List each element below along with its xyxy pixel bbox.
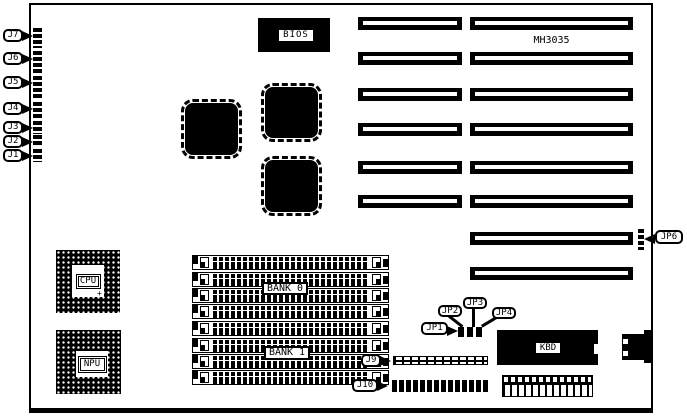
j10-pin-header — [392, 380, 488, 392]
connector-pads-j1 — [33, 149, 42, 162]
connector-pads-j6 — [33, 51, 42, 75]
pin1-marker: + — [97, 290, 102, 298]
isa-slot-1-short — [358, 17, 462, 30]
npu-socket: NPU — [56, 330, 121, 394]
callout-j10: J10 — [352, 379, 378, 392]
callout-j9: J9 — [361, 354, 381, 367]
isa-slot-3-short — [358, 88, 462, 101]
callout-jp4-label: JP4 — [496, 309, 512, 318]
jumper-block-jp1-jp4 — [458, 327, 485, 337]
isa-slot-6-long — [470, 195, 633, 208]
kbd-label: KBD — [535, 342, 561, 354]
callout-arrow-right-icon — [380, 356, 391, 366]
simm-slot-1 — [192, 255, 389, 270]
callout-j7-label: J7 — [8, 31, 19, 40]
connector-pads-j7 — [33, 28, 42, 48]
connector-pads-j5 — [33, 76, 42, 100]
power-connector-pins — [502, 375, 593, 384]
callout-arrow-right-icon — [377, 381, 388, 391]
callout-jp1: JP1 — [421, 322, 448, 335]
callout-jp2: JP2 — [438, 305, 462, 317]
callout-j6: J6 — [3, 52, 23, 65]
callout-j6-label: J6 — [8, 54, 19, 63]
isa-slot-5-short — [358, 161, 462, 174]
isa-slot-5-long — [470, 161, 633, 174]
callout-j5: J5 — [3, 76, 23, 89]
callout-arrow-right-icon — [22, 78, 33, 88]
callout-arrow-right-icon — [22, 123, 33, 133]
callout-arrow-right-icon — [22, 151, 33, 161]
callout-j3-label: J3 — [8, 123, 19, 132]
connector-pads-j2 — [33, 135, 42, 147]
keyboard-din-connector — [622, 334, 644, 360]
callout-j7: J7 — [3, 29, 23, 42]
simm-slot-4 — [192, 304, 389, 319]
callout-j3: J3 — [3, 121, 23, 134]
callout-arrow-right-icon — [22, 31, 33, 41]
callout-arrow-right-icon — [22, 104, 33, 114]
callout-j10-label: J10 — [357, 381, 373, 390]
callout-j1: J1 — [3, 149, 23, 162]
power-connector-terminals — [502, 384, 593, 397]
connector-pads-j4 — [33, 102, 42, 118]
connector-pads-j3 — [33, 121, 42, 134]
cpu-socket: CPU + — [56, 250, 120, 313]
isa-slot-6-short — [358, 195, 462, 208]
callout-jp4: JP4 — [492, 307, 516, 319]
npu-socket-well: NPU — [76, 351, 108, 377]
callout-jp2-label: JP2 — [442, 307, 458, 316]
callout-arrow-right-icon — [447, 326, 458, 336]
isa-slot-3-long — [470, 88, 633, 101]
callout-jp6-label: JP6 — [661, 233, 677, 242]
isa-slot-1-long — [470, 17, 633, 30]
isa-slot-2-long — [470, 52, 633, 65]
bios-chip: BIOS — [258, 18, 330, 52]
bios-label: BIOS — [278, 29, 314, 42]
cpu-label: CPU — [78, 276, 99, 287]
model-number-label: MH3035 — [470, 35, 633, 46]
chip-notch — [594, 344, 598, 354]
isa-slot-7 — [470, 232, 633, 245]
callout-j1-label: J1 — [8, 151, 19, 160]
callout-arrow-left-icon — [644, 234, 655, 244]
simm-slot-5 — [192, 321, 389, 336]
callout-j4: J4 — [3, 102, 23, 115]
callout-jp1-label: JP1 — [426, 324, 442, 333]
keyboard-din-connector-body — [644, 330, 651, 363]
callout-j9-label: J9 — [366, 356, 377, 365]
kbd-chip: KBD — [497, 330, 598, 365]
isa-slot-8 — [470, 267, 633, 280]
isa-slot-4-long — [470, 123, 633, 136]
callout-jp6: JP6 — [655, 230, 683, 244]
bank0-label: BANK 0 — [262, 282, 308, 295]
callout-j2-label: J2 — [8, 137, 19, 146]
callout-j5-label: J5 — [8, 78, 19, 87]
qfp-chip-2 — [265, 87, 318, 138]
callout-j4-label: J4 — [8, 104, 19, 113]
qfp-chip-1 — [185, 103, 238, 155]
qfp-chip-3 — [265, 160, 318, 212]
callout-j2: J2 — [3, 135, 23, 148]
callout-jp3-label: JP3 — [467, 299, 483, 308]
bank1-label: BANK 1 — [264, 346, 310, 360]
motherboard-layout-diagram: J7 J6 J5 J4 J3 J2 J1 BIOS MH3035 JP6 — [0, 0, 687, 416]
j9-pin-header — [393, 356, 488, 365]
callout-arrow-right-icon — [22, 54, 33, 64]
callout-jp3: JP3 — [463, 297, 487, 309]
callout-arrow-right-icon — [22, 137, 33, 147]
isa-slot-2-short — [358, 52, 462, 65]
isa-slot-4-short — [358, 123, 462, 136]
npu-label: NPU — [80, 358, 105, 371]
callout-pointer-line — [472, 309, 475, 327]
